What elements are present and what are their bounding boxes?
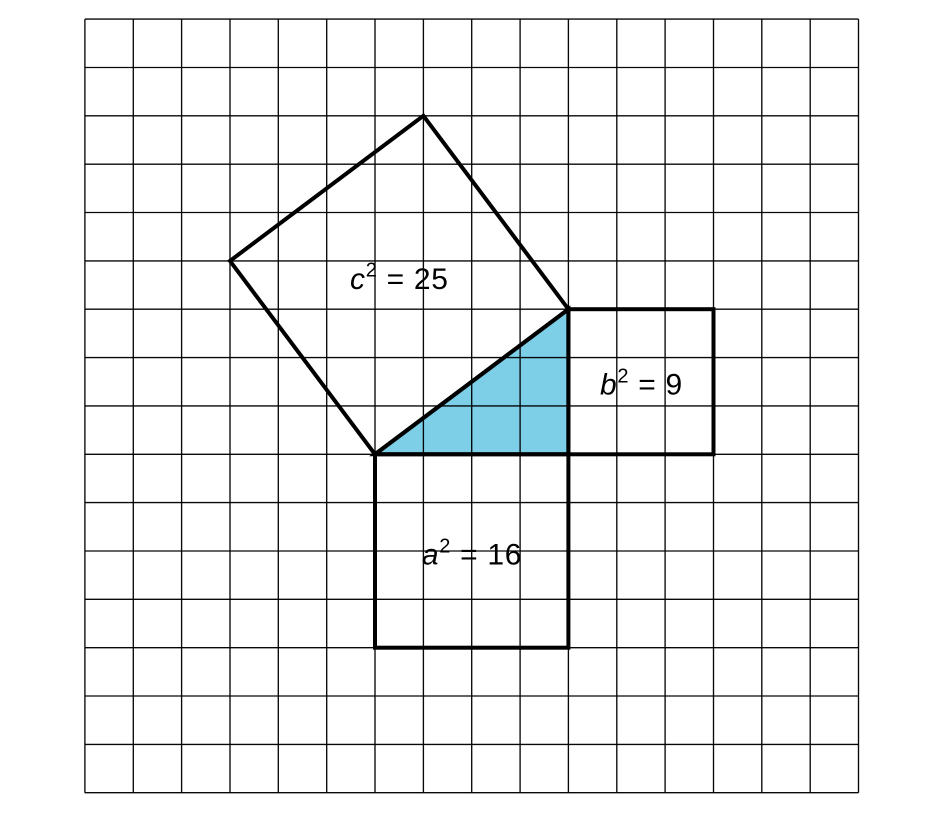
svg-text:a2 = 16: a2 = 16 [422, 535, 522, 571]
svg-text:c2 = 25: c2 = 25 [350, 260, 449, 296]
svg-text:b2 = 9: b2 = 9 [600, 365, 683, 401]
